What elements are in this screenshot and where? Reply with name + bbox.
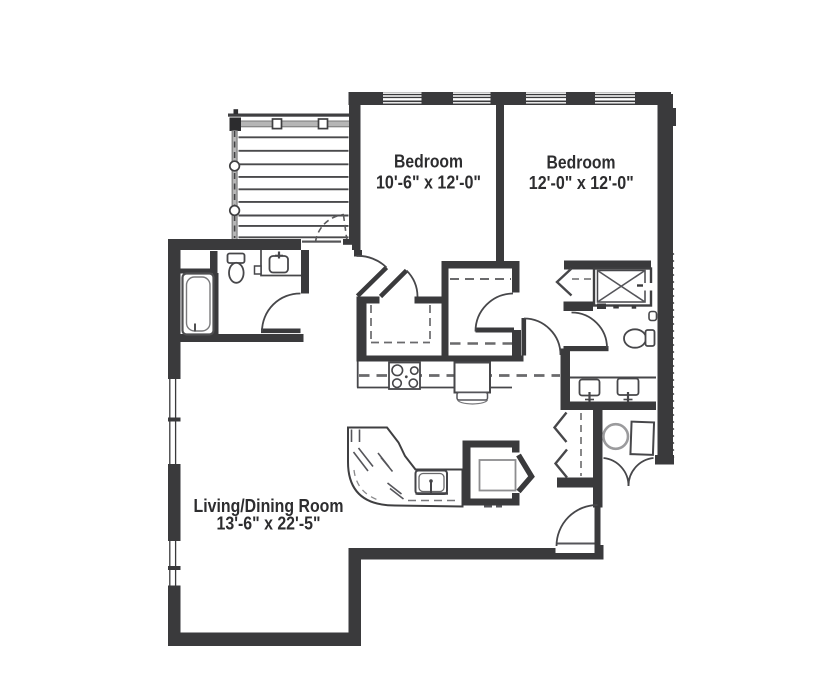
svg-text:Bedroom: Bedroom (547, 152, 616, 173)
svg-text:13'-6" x 22'-5": 13'-6" x 22'-5" (217, 513, 321, 534)
svg-text:Bedroom: Bedroom (394, 151, 463, 172)
svg-text:10'-6" x 12'-0": 10'-6" x 12'-0" (376, 172, 481, 193)
svg-text:12'-0" x 12'-0": 12'-0" x 12'-0" (529, 172, 634, 193)
